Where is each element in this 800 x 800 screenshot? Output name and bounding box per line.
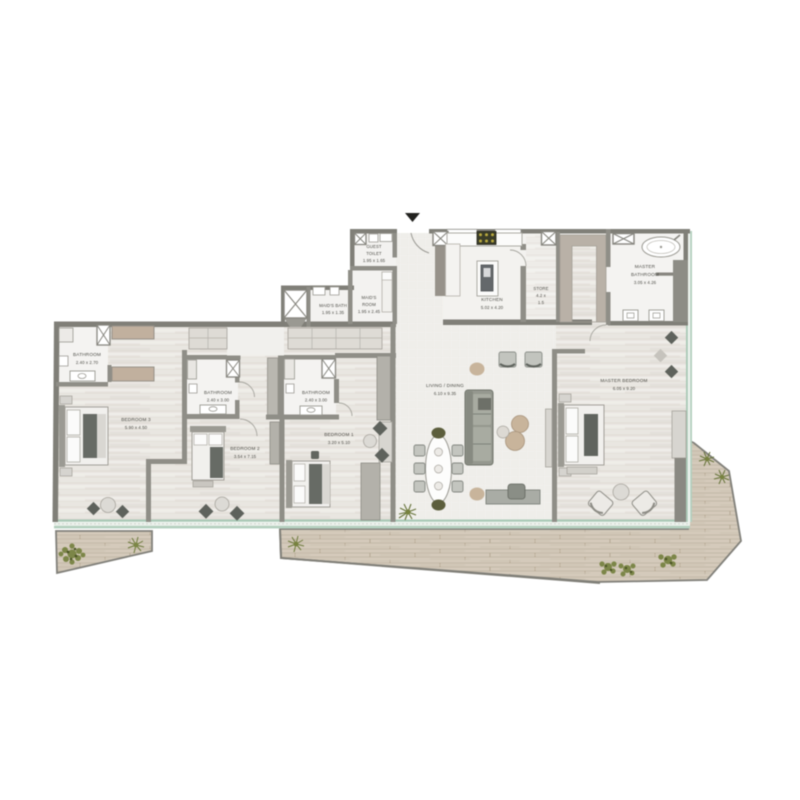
svg-text:MASTER: MASTER (635, 264, 656, 269)
svg-text:1.95 x 2.45: 1.95 x 2.45 (358, 309, 381, 314)
svg-text:2.40 x 3.00: 2.40 x 3.00 (207, 398, 230, 403)
svg-text:MAID'S BATH: MAID'S BATH (319, 303, 347, 308)
svg-text:GUEST: GUEST (366, 244, 382, 249)
svg-text:LIVING / DINING: LIVING / DINING (426, 383, 464, 388)
svg-text:5.90 x 4.50: 5.90 x 4.50 (125, 425, 148, 430)
svg-text:4.2 x: 4.2 x (536, 293, 547, 298)
svg-text:BATHROOM: BATHROOM (204, 390, 232, 395)
svg-text:BATHROOM: BATHROOM (73, 352, 101, 357)
svg-text:BEDROOM 1: BEDROOM 1 (324, 432, 354, 437)
svg-text:5.02 x 4.20: 5.02 x 4.20 (481, 305, 504, 310)
svg-text:BEDROOM 3: BEDROOM 3 (121, 417, 151, 422)
svg-text:2.40 x 3.00: 2.40 x 3.00 (305, 398, 328, 403)
svg-text:3.20 x 5.10: 3.20 x 5.10 (328, 440, 351, 445)
svg-text:MASTER BEDROOM: MASTER BEDROOM (600, 378, 647, 383)
svg-text:STORE: STORE (533, 286, 548, 291)
svg-text:TOILET: TOILET (366, 251, 382, 256)
svg-text:ROOM: ROOM (362, 302, 376, 307)
svg-text:1.5: 1.5 (538, 300, 545, 305)
svg-text:1.95 x 1.35: 1.95 x 1.35 (322, 310, 345, 315)
svg-text:BEDROOM 2: BEDROOM 2 (230, 446, 260, 451)
svg-text:3.54 x 7.15: 3.54 x 7.15 (234, 454, 257, 459)
svg-text:2.40 x 2.70: 2.40 x 2.70 (76, 360, 99, 365)
svg-text:1.95 x 1.65: 1.95 x 1.65 (363, 258, 386, 263)
svg-text:6.05 x 9.20: 6.05 x 9.20 (613, 386, 636, 391)
svg-text:KITCHEN: KITCHEN (481, 297, 503, 302)
svg-text:3.05 x 4.26: 3.05 x 4.26 (634, 280, 657, 285)
svg-text:BATHROOM: BATHROOM (631, 272, 659, 277)
svg-text:BATHROOM: BATHROOM (302, 390, 330, 395)
svg-text:6.10 x 9.35: 6.10 x 9.35 (434, 391, 457, 396)
svg-text:MAID'S: MAID'S (361, 295, 376, 300)
